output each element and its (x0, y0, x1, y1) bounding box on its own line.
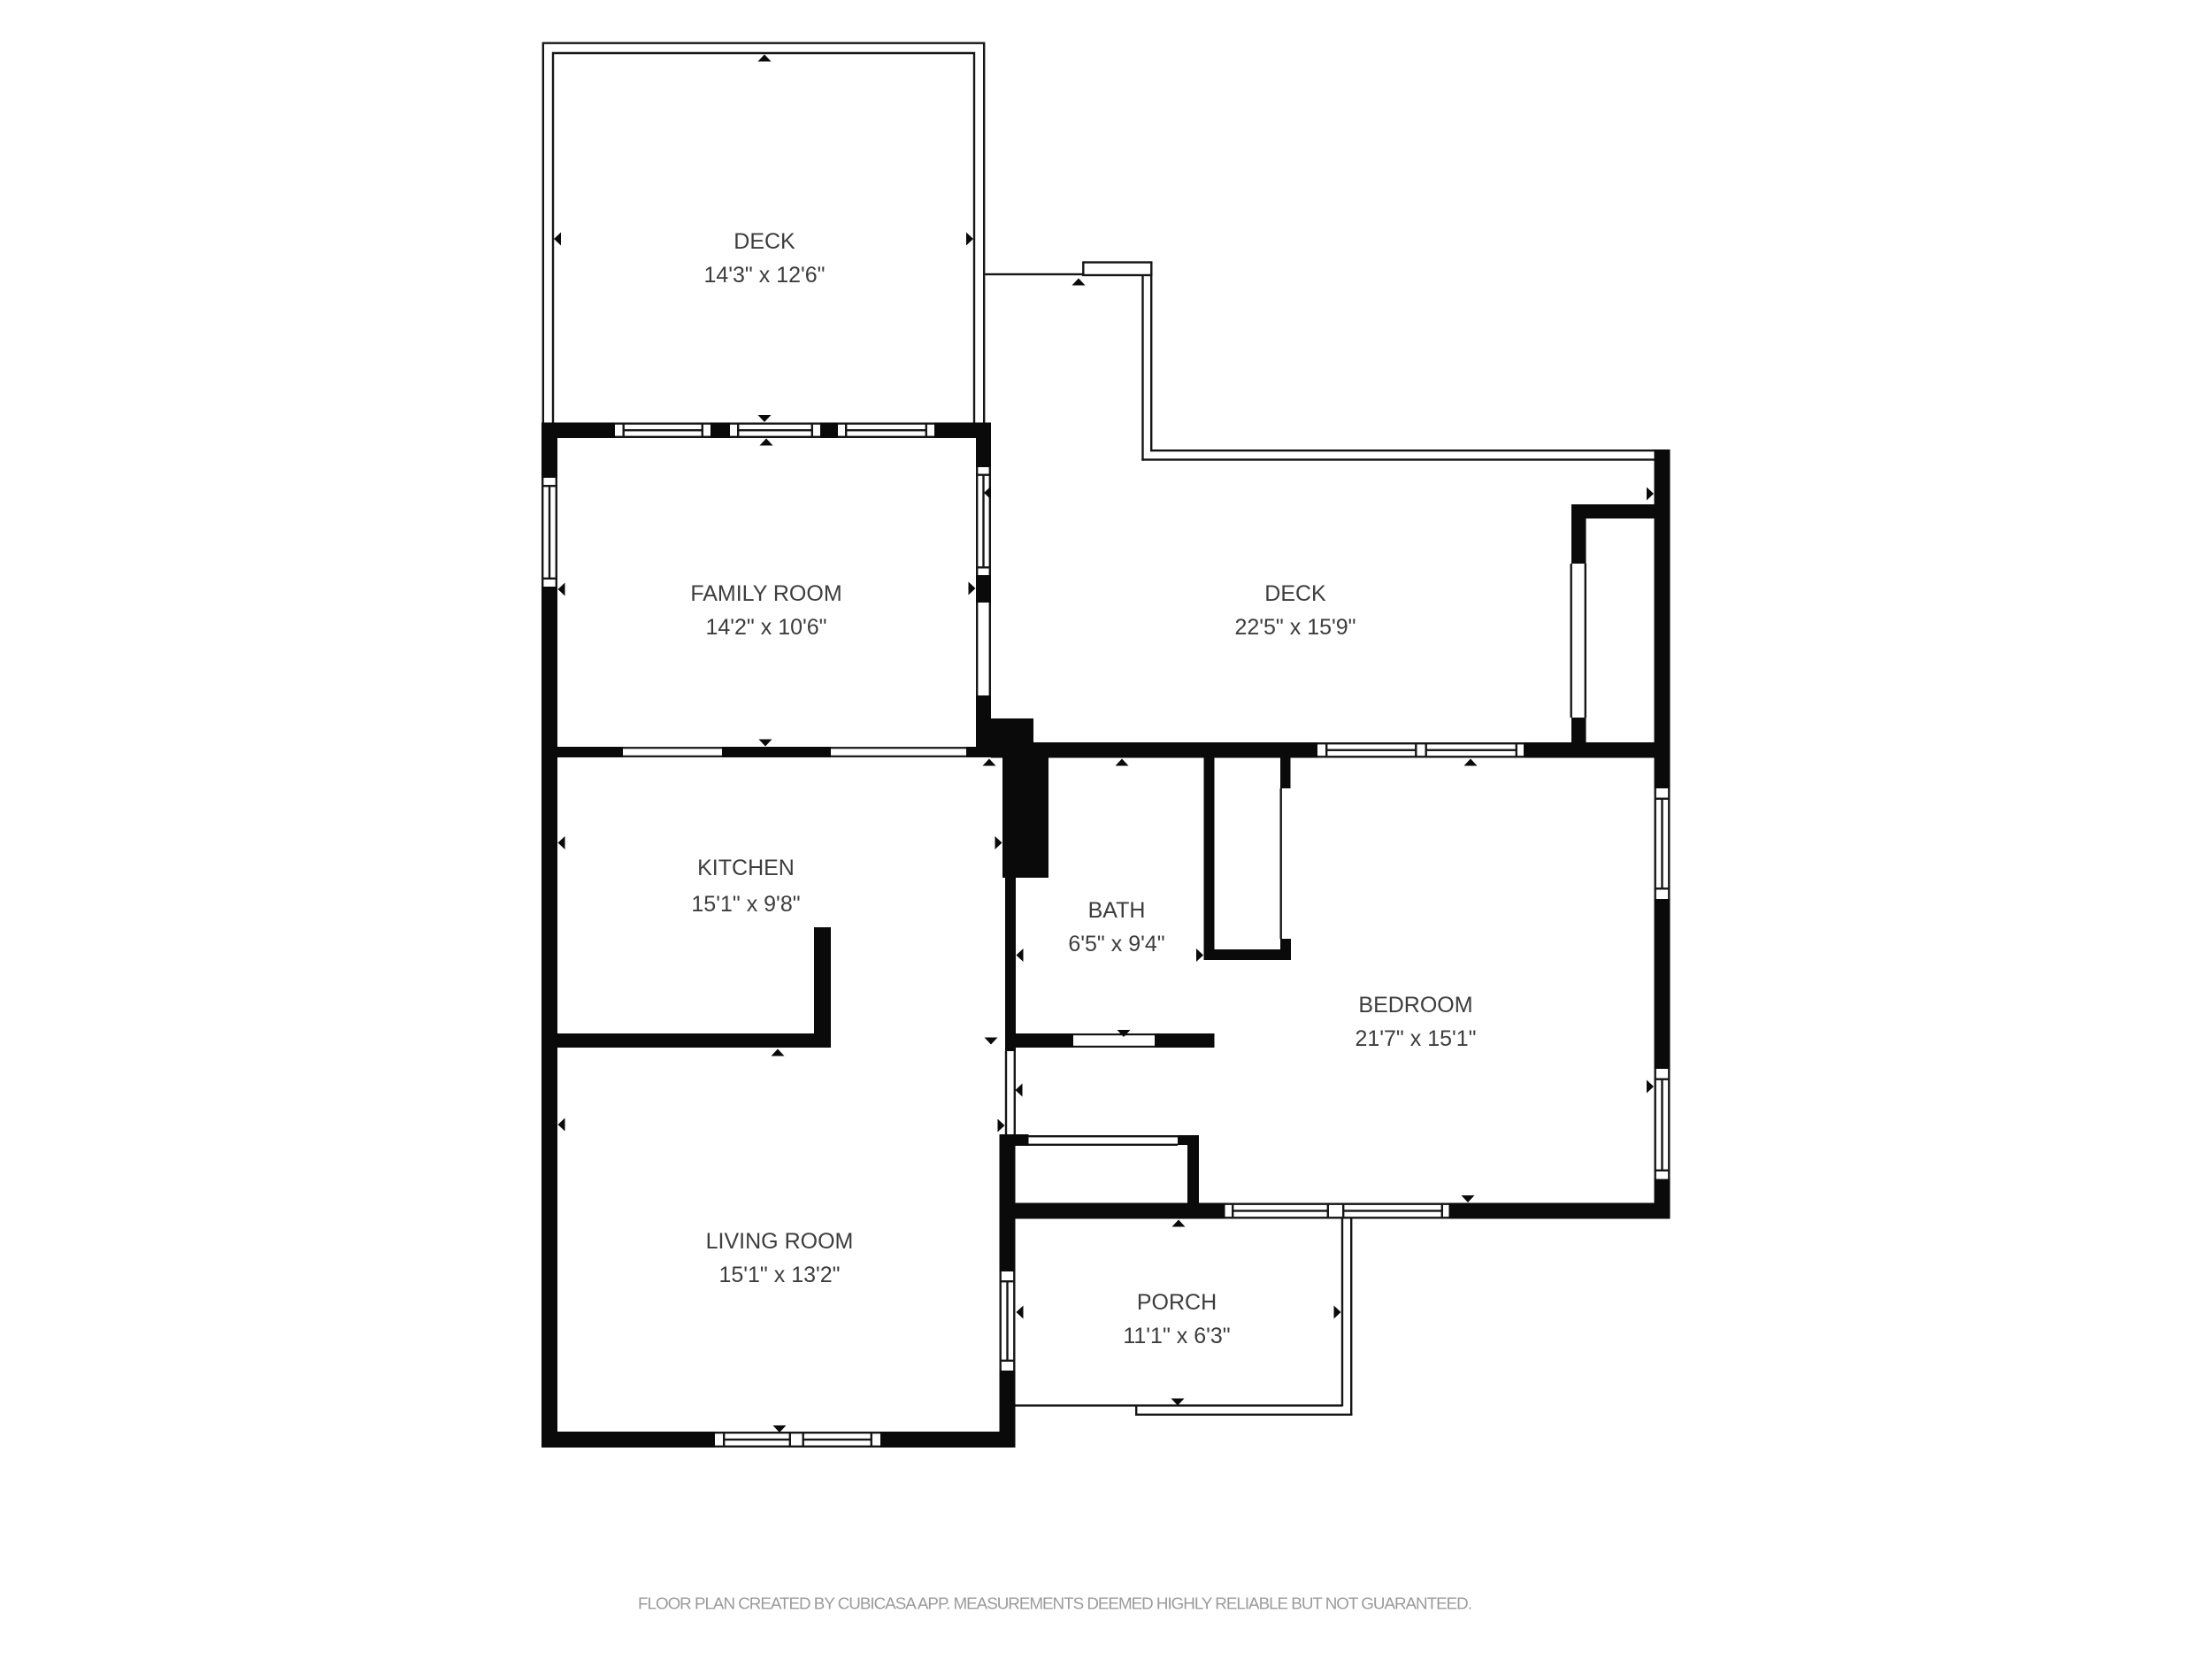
svg-text:15'1" x 9'8": 15'1" x 9'8" (691, 892, 800, 917)
svg-text:BATH: BATH (1088, 898, 1146, 923)
svg-text:DECK: DECK (733, 229, 795, 254)
svg-text:15'1" x 13'2": 15'1" x 13'2" (718, 1263, 840, 1287)
svg-text:BEDROOM: BEDROOM (1358, 993, 1472, 1018)
svg-text:6'5" x 9'4": 6'5" x 9'4" (1068, 932, 1164, 956)
svg-text:DECK: DECK (1264, 581, 1326, 606)
svg-text:14'3" x 12'6": 14'3" x 12'6" (703, 263, 825, 288)
svg-text:LIVING ROOM: LIVING ROOM (706, 1229, 854, 1254)
svg-text:21'7" x 15'1": 21'7" x 15'1" (1355, 1026, 1476, 1051)
svg-text:FLOOR PLAN CREATED BY CUBICASA: FLOOR PLAN CREATED BY CUBICASA APP. MEAS… (638, 1594, 1471, 1613)
svg-text:22'5" x 15'9": 22'5" x 15'9" (1234, 615, 1356, 640)
svg-text:PORCH: PORCH (1137, 1290, 1217, 1315)
svg-text:KITCHEN: KITCHEN (697, 856, 795, 880)
svg-text:11'1" x 6'3": 11'1" x 6'3" (1123, 1324, 1230, 1348)
svg-text:FAMILY ROOM: FAMILY ROOM (690, 581, 841, 606)
svg-text:14'2" x 10'6": 14'2" x 10'6" (705, 615, 826, 640)
